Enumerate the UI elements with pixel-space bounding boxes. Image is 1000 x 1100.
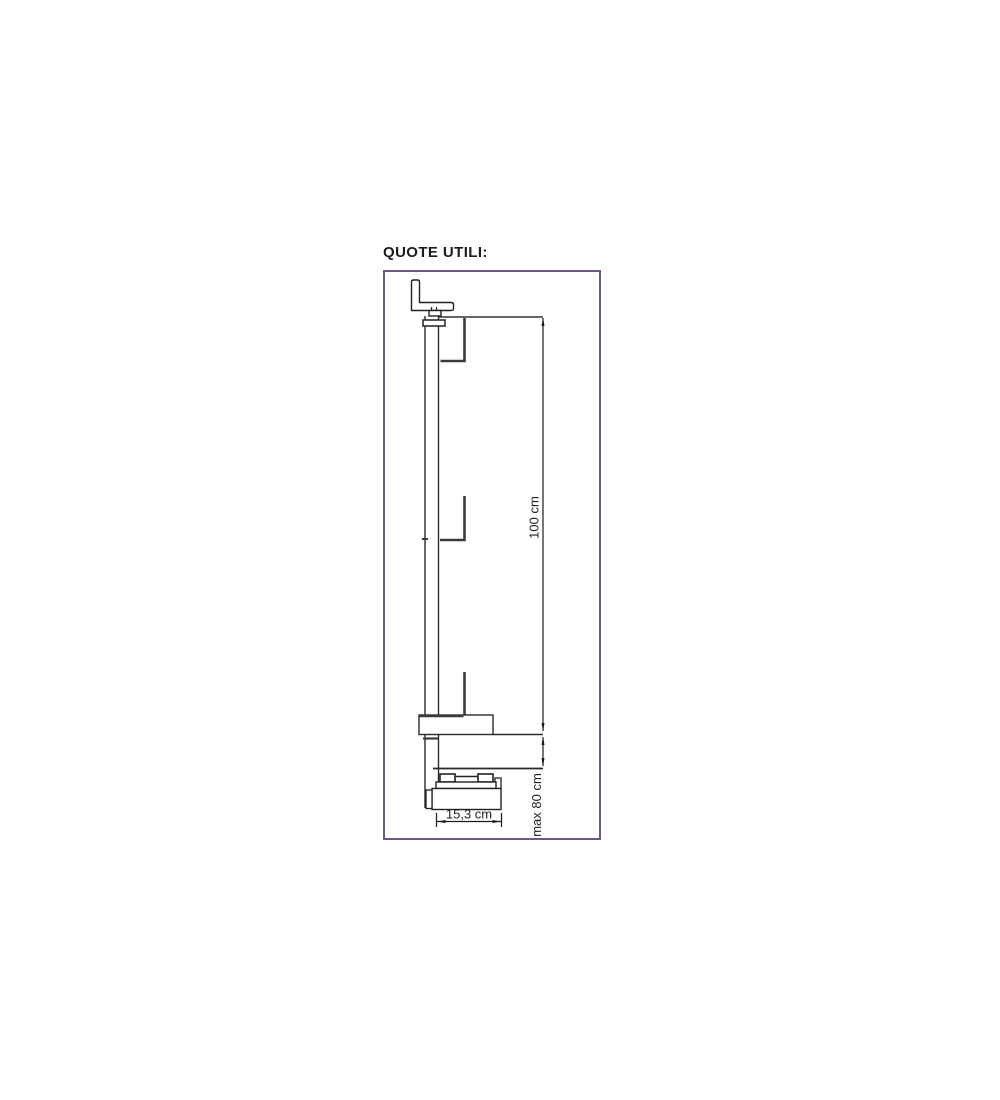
arrow-up-icon (542, 737, 545, 746)
dimension-100cm: 100 cm (527, 318, 545, 732)
arrow-down-icon (542, 723, 545, 732)
dimension-15-3cm: 15,3 cm (437, 807, 502, 828)
dimension-label-max80cm: max 80 cm (529, 773, 544, 837)
base-unit (426, 774, 501, 810)
page: QUOTE UTILI: (0, 0, 1000, 1100)
diagram-frame: 100 cm max 80 cm 15,3 cm (383, 270, 601, 840)
hook-nut (429, 311, 441, 317)
arrow-left-icon (437, 820, 446, 823)
dimension-label-15-3cm: 15,3 cm (446, 807, 492, 822)
clamp-right (478, 774, 493, 782)
dimension-max80cm: max 80 cm (529, 737, 545, 837)
base-top-bar (436, 782, 496, 789)
wall-hook-bracket (412, 280, 454, 316)
shelf-mount (419, 715, 493, 735)
base-left-block (426, 790, 432, 809)
clamp-left (440, 774, 455, 782)
arrow-right-icon (493, 820, 502, 823)
middle-bracket (422, 496, 465, 540)
post-collar (423, 320, 445, 326)
page-title: QUOTE UTILI: (383, 244, 488, 261)
arrow-down-icon (542, 758, 545, 767)
technical-drawing: 100 cm max 80 cm 15,3 cm (383, 270, 601, 840)
arrow-up-icon (542, 318, 545, 327)
dimension-label-100cm: 100 cm (527, 496, 542, 539)
